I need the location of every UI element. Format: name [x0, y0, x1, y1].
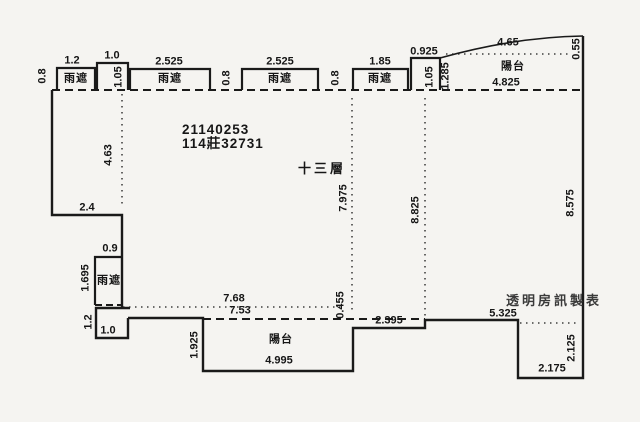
room-label: 雨遮 — [97, 276, 121, 287]
dimension-label: 1.0 — [100, 326, 115, 337]
dimension-label: 1.695 — [81, 264, 92, 292]
dimension-label: 0.55 — [572, 38, 583, 59]
floorplan-canvas: 21140253 114莊32731 十三層 透明房訊製表 0.81.2雨遮1.… — [0, 0, 640, 422]
serial-number: 114莊32731 — [182, 137, 264, 151]
dimension-label: 2.395 — [375, 316, 403, 327]
dimension-label: 1.05 — [114, 66, 125, 87]
dimension-label: 2.175 — [538, 364, 566, 375]
dimension-label: 5.325 — [489, 309, 517, 320]
dimension-label: 1.0 — [104, 51, 119, 62]
dimension-label: 1.2 — [64, 56, 79, 67]
dimension-label: 4.995 — [265, 356, 293, 367]
dimension-label: 8.575 — [566, 189, 577, 217]
dimension-label: 4.65 — [497, 38, 518, 49]
dimension-label: 4.63 — [104, 144, 115, 165]
dimension-label: 0.9 — [102, 244, 117, 255]
dimension-label: 2.525 — [155, 57, 183, 68]
dimension-label: 7.53 — [229, 306, 250, 317]
dimension-label: 4.825 — [492, 78, 520, 89]
dimension-label: 0.455 — [336, 291, 347, 319]
dimension-label: 1.05 — [425, 66, 436, 87]
dimension-label: 1.285 — [441, 62, 452, 90]
room-label: 雨遮 — [64, 74, 88, 85]
dimension-label: 1.925 — [190, 331, 201, 359]
dimension-label: 1.85 — [369, 57, 390, 68]
dimension-label: 2.4 — [79, 203, 94, 214]
dimension-label: 0.925 — [410, 47, 438, 58]
dimension-label: 8.825 — [411, 196, 422, 224]
dimension-label: 2.125 — [567, 334, 578, 362]
watermark-text: 透明房訊製表 — [506, 294, 602, 307]
room-label: 雨遮 — [368, 74, 392, 85]
room-label: 雨遮 — [158, 74, 182, 85]
dimension-label: 0.8 — [331, 70, 342, 85]
floor-label: 十三層 — [298, 162, 346, 175]
dimension-label: 0.8 — [38, 68, 49, 83]
registration-number: 21140253 — [182, 123, 249, 137]
floorplan-linework — [0, 0, 640, 422]
dimension-label: 7.975 — [339, 184, 350, 212]
room-label: 陽台 — [269, 335, 293, 346]
room-label: 陽台 — [501, 62, 525, 73]
dimension-label: 1.2 — [84, 314, 95, 329]
dimension-label: 2.525 — [266, 57, 294, 68]
room-label: 雨遮 — [268, 74, 292, 85]
dimension-label: 0.8 — [222, 70, 233, 85]
dimension-label: 7.68 — [223, 294, 244, 305]
